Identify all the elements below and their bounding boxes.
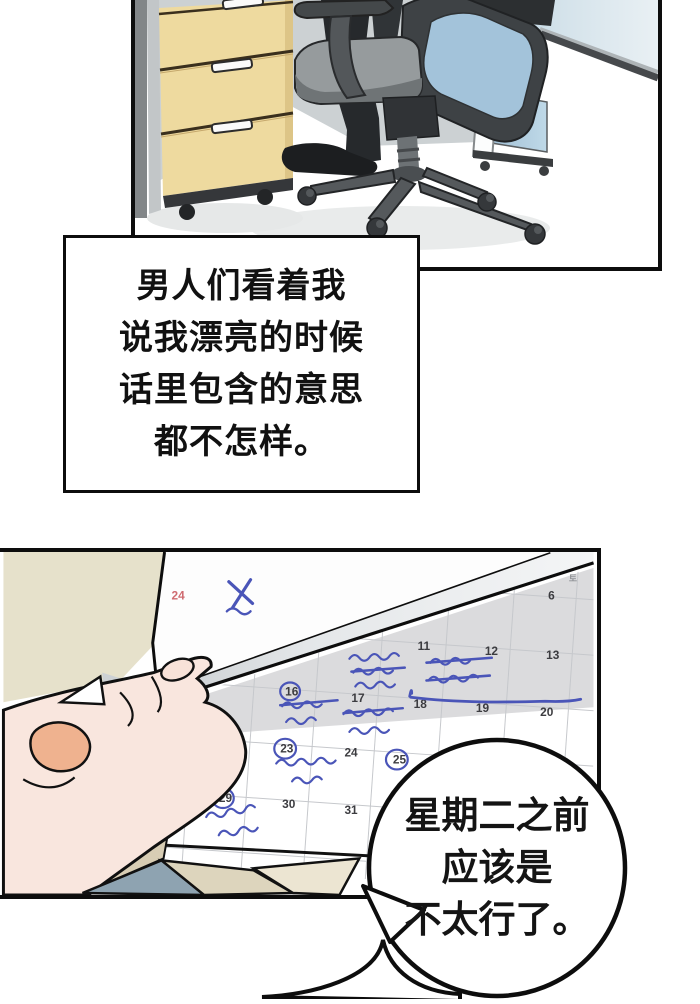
speech-bubble: 星期二之前 应该是 不太行了。	[250, 728, 645, 999]
calendar-day-16: 16	[285, 684, 299, 698]
desk-foot	[480, 161, 490, 171]
file-cabinet	[135, 0, 293, 220]
flipped-page-day-24: 24	[171, 588, 185, 602]
desk-foot	[539, 166, 549, 176]
calendar-day-6: 6	[548, 588, 555, 602]
thumb	[30, 722, 90, 771]
cabinet-side-dark	[135, 0, 147, 218]
calendar-day-20: 20	[540, 705, 554, 719]
bubble-line-3: 不太行了。	[405, 899, 590, 940]
calendar-day-12: 12	[485, 644, 499, 658]
cabinet-caster	[179, 204, 195, 220]
narration-line: 都不怎样。	[154, 416, 329, 468]
cabinet-side-light	[147, 0, 161, 214]
calendar-day-17: 17	[351, 691, 365, 705]
cylinder-ring	[398, 159, 420, 161]
panel-office-scene	[131, 0, 662, 271]
chair-base-hub	[391, 166, 427, 182]
calendar-day-13: 13	[546, 648, 560, 662]
weekday-header-sat: 토	[569, 574, 577, 584]
narration-line: 男人们看着我	[137, 260, 347, 312]
cabinet-caster	[257, 189, 273, 205]
chair-mechanism	[383, 96, 439, 140]
speech-bubble-layer: 星期二之前 应该是 不太行了。	[250, 728, 645, 999]
office-scene-illustration	[135, 0, 658, 267]
bubble-line-2: 应该是	[442, 847, 553, 888]
narration-line: 话里包含的意思	[119, 364, 364, 416]
chair-armrest-pad	[295, 0, 393, 18]
calendar-day-11: 11	[418, 639, 431, 653]
chair-gas-cylinder	[397, 136, 419, 170]
cylinder-ring	[397, 149, 419, 151]
narration-line: 说我漂亮的时候	[119, 312, 364, 364]
narration-box: 男人们看着我 说我漂亮的时候 话里包含的意思 都不怎样。	[63, 235, 420, 493]
calendar-day-19: 19	[476, 701, 490, 715]
cabinet-floor-shadow	[147, 203, 303, 233]
cabinet-front	[159, 0, 293, 196]
bubble-line-1: 星期二之前	[405, 795, 590, 836]
